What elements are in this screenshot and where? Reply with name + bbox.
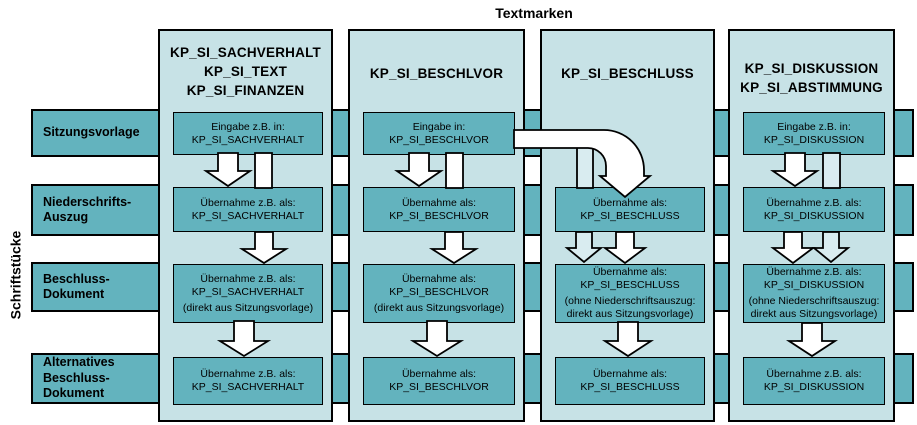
cell-diskussion-beschluss: Übernahme z.B. als: KP_SI_DISKUSSION (oh… (743, 264, 885, 323)
cell-sachverhalt-alt-beschluss: Übernahme z.B. als: KP_SI_SACHVERHALT (173, 357, 323, 405)
column-kp-si-diskussion: KP_SI_DISKUSSION KP_SI_ABSTIMMUNG Eingab… (728, 29, 895, 422)
side-axis-label: Schriftstücke (7, 231, 23, 320)
row-label: Beschluss- Dokument (33, 272, 173, 303)
column-header: KP_SI_BESCHLVOR (350, 64, 523, 83)
column-kp-si-sachverhalt: KP_SI_SACHVERHALT KP_SI_TEXT KP_SI_FINAN… (158, 29, 333, 422)
cell-sachverhalt-niederschrift: Übernahme z.B. als: KP_SI_SACHVERHALT (173, 187, 323, 232)
cell-beschlvor-alt-beschluss: Übernahme als: KP_SI_BESCHLVOR (363, 357, 515, 405)
column-header: KP_SI_SACHVERHALT KP_SI_TEXT KP_SI_FINAN… (160, 43, 331, 100)
cell-beschlvor-beschluss: Übernahme als: KP_SI_BESCHLVOR (direkt a… (363, 264, 515, 323)
cell-beschluss-niederschrift: Übernahme als: KP_SI_BESCHLUSS (555, 187, 705, 232)
cell-beschluss-alt-beschluss: Übernahme als: KP_SI_BESCHLUSS (555, 357, 705, 405)
cell-diskussion-niederschrift: Übernahme z.B. als: KP_SI_DISKUSSION (743, 187, 885, 232)
cell-beschlvor-niederschrift: Übernahme als: KP_SI_BESCHLVOR (363, 187, 515, 232)
diagram-canvas: Textmarken Schriftstücke Sitzungsvorlage… (0, 0, 917, 425)
row-label: Niederschrifts- Auszug (33, 195, 173, 226)
cell-diskussion-alt-beschluss: Übernahme z.B. als: KP_SI_DISKUSSION (743, 357, 885, 405)
side-axis: Schriftstücke (0, 180, 30, 370)
cell-beschluss-beschluss: Übernahme als: KP_SI_BESCHLUSS (ohne Nie… (555, 264, 705, 323)
column-header: KP_SI_BESCHLUSS (542, 64, 713, 83)
cell-beschlvor-sitzungsvorlage: Eingabe in: KP_SI_BESCHLVOR (363, 112, 515, 155)
column-kp-si-beschluss: KP_SI_BESCHLUSS Übernahme als: KP_SI_BES… (540, 29, 715, 422)
diagram-title: Textmarken (173, 5, 895, 21)
cell-sachverhalt-beschluss: Übernahme z.B. als: KP_SI_SACHVERHALT (d… (173, 264, 323, 323)
cell-diskussion-sitzungsvorlage: Eingabe z.B. in: KP_SI_DISKUSSION (743, 112, 885, 155)
column-kp-si-beschlvor: KP_SI_BESCHLVOR Eingabe in: KP_SI_BESCHL… (348, 29, 525, 422)
row-label: Sitzungsvorlage (33, 125, 173, 141)
row-label: Alternatives Beschluss- Dokument (33, 355, 173, 402)
column-header: KP_SI_DISKUSSION KP_SI_ABSTIMMUNG (730, 59, 893, 97)
cell-sachverhalt-sitzungsvorlage: Eingabe z.B. in: KP_SI_SACHVERHALT (173, 112, 323, 155)
